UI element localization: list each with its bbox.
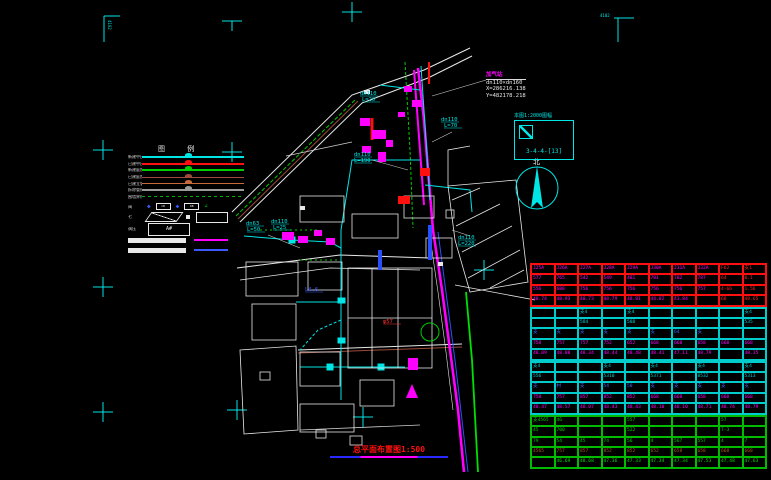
road-parallelogram-icon [144,212,183,222]
table-cell: 857 [578,447,602,457]
legend-line-sample [142,189,244,191]
table-cell: 48.68 [578,457,602,467]
table-cell: 48.79 [696,349,720,359]
legend-line-label: 新建庭院 [128,168,142,172]
table-cell: 4 [649,437,673,447]
legend-line-sample [142,177,244,178]
table-cell: 支 [602,328,626,338]
table-cell: 48.71 [696,403,720,413]
table-cell: 757 [555,447,579,457]
table-cell: 54 [602,382,626,392]
table-cell: 56 [625,437,649,447]
table-cell: 852 [602,393,626,403]
table-cell: 584 [578,318,602,328]
legend-line-label: 拆除管线 [128,188,142,192]
table-cell: 45 [531,426,555,436]
legend-ab-row: 调压A# [128,223,244,235]
pipe-network [244,85,472,400]
table-cell: 47.11 [672,349,696,359]
table-cell: 46.69 [555,457,579,467]
table-cell [555,318,579,328]
table-cell: 48.74 [719,403,743,413]
table-cell: 652 [625,339,649,349]
table-cell: 47.33 [625,457,649,467]
table-cell: 7-3 [719,426,743,436]
table-cell: 4565 [531,447,555,457]
legend-line-label: 已建立管 [128,182,142,186]
table-cell [555,362,579,372]
table-cell: 756 [578,285,602,295]
table-cell: 1.56 [743,285,767,295]
detail-box-title: 本图1:2000图幅 [514,112,576,119]
table-cell: 781 [649,274,673,284]
table-cell: 668 [672,393,696,403]
table-cell: 668 [743,393,767,403]
table-cell: 4 [719,437,743,447]
table-cell [649,416,673,426]
legend-symbol-box: DB [184,203,199,210]
table-cell: 47.63 [743,457,767,467]
legend-ab-label: 调压 [128,227,142,231]
table-cell: 支 [743,382,767,392]
table-cell [696,318,720,328]
table-cell: 758 [531,339,555,349]
station-annotation: 加气站 dn110×dn160 X=286216.138 Y=482178.21… [486,72,526,99]
table-cell: 47.36 [602,457,626,467]
table-cell: 668 [743,447,767,457]
table-cell: 557 [696,437,720,447]
table-cell: 支4 [602,362,626,372]
table-cell [649,318,673,328]
table-cell: 48.74 [531,295,555,305]
legend-bar-row [128,235,244,245]
table-cell [625,372,649,382]
legend-line-sample [142,163,244,165]
table-cell: 48.93 [555,295,579,305]
table-cell: 668 [719,393,743,403]
table-cell [555,308,579,318]
corner-text-tl: 4102 [107,20,111,30]
table-cell: 48.10 [672,403,696,413]
legend-line-row: 新建庭院 [128,167,244,174]
table-cell: 756 [625,285,649,295]
table-cell [672,362,696,372]
table-cell: 支4565 [531,416,555,426]
table-cell: 44.82 [649,295,673,305]
table-cell: 47.53 [696,457,720,467]
angle-icon: ∠ [204,203,208,210]
table-cell [696,308,720,318]
table-cell: 48.34 [578,349,602,359]
table-cell: 47.34 [649,457,673,467]
table-cell [672,372,696,382]
table-cell [602,318,626,328]
table-cell: 757 [696,285,720,295]
table-cell: 557 [625,416,649,426]
table-cell: 48.09 [531,349,555,359]
drawing-title-text: 总平面布置图1:500 [330,444,448,455]
table-cell: J29A [625,264,649,274]
legend-line-label: 已建中压 [128,162,142,166]
table-cell: 48.08 [555,349,579,359]
table-cell [578,416,602,426]
table-cell: 47.48 [719,457,743,467]
table-cell [625,362,649,372]
table-cell: 577 [531,274,555,284]
table-cell [696,295,720,305]
table-cell: 7 [743,437,767,447]
legend-line-sample [142,156,244,158]
legend-line-marker [185,186,192,190]
table-cell [531,318,555,328]
table-cell: 68 [719,295,743,305]
table-cell: 支4 [578,308,602,318]
table-cell: 756 [649,285,673,295]
table-cell: F62 [719,264,743,274]
legend-line-sample [142,169,244,171]
table-cell: 757 [555,339,579,349]
table-cell: 852 [625,393,649,403]
table-cell: 支 [531,328,555,338]
accent-line-icon [194,239,228,241]
table-cell: 567 [672,437,696,447]
table-cell [672,308,696,318]
table-cell: 542 [578,274,602,284]
legend-line-sample [142,183,244,184]
table-cell: 658 [672,447,696,457]
table-cell [743,328,767,338]
table-cell [743,416,767,426]
table-cell: 668 [672,339,696,349]
table-cell: 48.43 [625,403,649,413]
square-icon [186,215,190,219]
table-cell [531,308,555,318]
table-cell [578,426,602,436]
table-cell: 48.41 [649,349,673,359]
table-section: 支4支4支4支4支45565310537185325313支村支5450支支支支… [530,361,767,415]
station-coord-x: X=286216.138 [486,86,526,93]
table-cell: 652 [649,447,673,457]
table-cell: 74 [602,437,626,447]
legend-shapes-row: 七 [128,211,244,223]
table-cell [531,457,555,467]
table-cell: 48.65 [743,295,767,305]
table-cell [578,362,602,372]
legend-shapes-label: 七 [128,215,142,219]
north-arrow: 北 [516,158,558,209]
legend-bar-row [128,245,244,255]
table-cell [719,362,743,372]
table-cell: 支1 [743,264,767,274]
table-cell: 48.81 [625,295,649,305]
table-cell: 48.57 [555,403,579,413]
table-cell: 48.47 [531,403,555,413]
table-section: J25AJ26AJ27AJ28AJ29AJ30AJ31AJ32AF62支1577… [530,263,767,307]
table-cell: 45 [578,437,602,447]
table-cell: 556 [531,372,555,382]
hatch-square-icon [519,125,533,139]
legend-line-label: 新建中压 [128,155,142,159]
legend-line-marker [185,180,192,184]
table-cell [696,426,720,436]
table-cell: 48.48 [625,349,649,359]
legend: 图 例 新建中压已建中压新建庭院已建庭院已建立管拆除管线围墙界线阀◆CB◆DB∠… [128,144,244,255]
table-cell: J27A [578,264,602,274]
table-cell: 756 [602,285,626,295]
table-cell [649,426,673,436]
corner-text-tr: 4102 [600,14,610,18]
buildings-group [240,196,454,445]
table-cell: 787 [696,274,720,284]
table-cell: J26A [555,264,579,274]
table-cell: 48.44 [602,349,626,359]
legend-line-sample [142,196,244,197]
valve-diamond-icon: ◆ [147,204,151,210]
table-cell: J31A [672,264,696,274]
white-bar-icon [128,248,186,253]
accent-features [260,90,443,341]
legend-title: 图 例 [158,144,244,154]
table-cell: 852 [625,447,649,457]
station-name: 加气站 [486,72,526,80]
table-cell: J30A [649,264,673,274]
table-cell [719,318,743,328]
table-cell [672,426,696,436]
legend-line-marker [185,160,192,164]
table-cell: 658 [696,339,720,349]
table-cell [672,318,696,328]
table-cell: 688 [555,285,579,295]
table-cell: 支 [696,328,720,338]
table-cell: 668 [743,339,767,349]
table-cell: 43.84 [672,295,696,305]
table-cell: 5371 [649,372,673,382]
table-cell: 支4 [531,362,555,372]
legend-line-marker [185,174,192,178]
table-cell [578,372,602,382]
table-cell: 700 [555,426,579,436]
cad-sheet: dn63L=50dn110L=25dn110L=190dn110L=20dn11… [0,0,771,480]
table-cell [719,372,743,382]
detail-reference-box: 本图1:2000图幅 3-4-4-[13] [514,112,576,160]
table-cell: 668 [649,339,673,349]
table-cell: 64 [672,328,696,338]
table-cell: 50 [625,382,649,392]
coordinate-table: J25AJ26AJ27AJ28AJ29AJ30AJ31AJ32AF62支1577… [530,263,767,469]
table-cell: 支 [625,328,649,338]
table-cell: 48.79 [743,403,767,413]
table-cell: 57 [719,416,743,426]
legend-line-marker [185,153,192,157]
table-cell: 5313 [743,372,767,382]
table-cell: 支 [649,328,673,338]
accent-line-icon [194,249,228,251]
table-cell: 47.34 [672,457,696,467]
detail-box-frame: 3-4-4-[13] [514,120,574,160]
table-cell: 756 [672,285,696,295]
table-cell: J32A [696,264,720,274]
table-cell: 48.07 [578,403,602,413]
leader-lines [268,80,486,248]
table-cell: 757 [578,339,602,349]
table-cell: 535 [743,318,767,328]
table-cell: 支4 [625,308,649,318]
pipeline-corridor [372,62,478,472]
table-section: 支45654655757457005227-379544574564567557… [530,415,767,469]
table-cell: 支 [531,382,555,392]
station-coord-y: Y=482178.218 [486,93,526,100]
table-cell [719,308,743,318]
table-cell: 0.1 [743,274,767,284]
table-cell: 48.43 [602,403,626,413]
table-cell: 支4 [743,362,767,372]
table-cell: 549 [602,274,626,284]
legend-symbol-box: CB [156,203,171,210]
table-cell [672,416,696,426]
table-cell: 668 [719,447,743,457]
drawing-title-underline [330,456,448,458]
table-cell: 852 [602,447,626,457]
table-cell: 481 [625,274,649,284]
table-cell: 8532 [696,372,720,382]
table-cell: 4-66 [719,285,743,295]
table-cell: 48.79 [602,295,626,305]
table-cell: 支 [578,328,602,338]
table-cell [696,416,720,426]
table-cell: 658 [696,447,720,457]
table-cell: 588 [625,318,649,328]
table-cell: 556 [531,285,555,295]
detail-sheet-ref: 3-4-4-[13] [515,148,573,155]
table-cell: 48.35 [743,349,767,359]
table-cell [602,426,626,436]
building-rect-icon [196,212,228,223]
table-cell: 支4 [649,362,673,372]
table-cell: 758 [531,393,555,403]
table-cell: 64 [719,274,743,284]
table-cell: 支4 [743,308,767,318]
table-cell [719,328,743,338]
table-cell: 857 [578,393,602,403]
table-cell: 支4 [696,362,720,372]
table-cell: 支 [719,382,743,392]
table-cell: 村 [555,382,579,392]
valve-diamond-icon: ◆ [176,204,180,210]
table-cell [602,416,626,426]
table-cell [602,308,626,318]
table-cell: 支 [578,382,602,392]
table-cell: 5310 [602,372,626,382]
table-cell: 752 [602,339,626,349]
table-cell [555,372,579,382]
table-cell: 支 [555,328,579,338]
table-cell [743,426,767,436]
table-cell: 522 [625,426,649,436]
table-cell: 79 [531,437,555,447]
table-cell: 658 [696,393,720,403]
legend-line-row: 拆除管线 [128,187,244,194]
legend-line-row: 围墙界线 [128,194,244,201]
table-cell: 48.10 [649,403,673,413]
table-section: 支4支4支4584588535支支支支支支64支7587577577526526… [530,307,767,361]
table-cell: J25A [531,264,555,274]
legend-rows: 新建中压已建中压新建庭院已建庭院已建立管拆除管线围墙界线阀◆CB◆DB∠七调压A… [128,154,244,255]
legend-line-label: 已建庭院 [128,175,142,179]
white-bar-icon [128,238,186,243]
legend-line-marker [185,166,192,170]
legend-line-label: 围墙界线 [128,195,142,199]
table-cell: 668 [649,393,673,403]
table-cell: 支 [672,382,696,392]
table-cell: 46 [555,416,579,426]
table-cell [719,349,743,359]
table-cell: 48.73 [578,295,602,305]
table-cell: 54 [555,437,579,447]
table-cell: 支 [649,382,673,392]
table-cell: 支 [696,382,720,392]
drawing-title: 总平面布置图1:500 [330,444,448,458]
table-cell: 765 [555,274,579,284]
table-cell: 757 [555,393,579,403]
table-cell [649,308,673,318]
legend-symbol-label: 阀 [128,205,142,209]
regulator-box-icon: A# [148,223,190,236]
table-cell: J28A [602,264,626,274]
legend-symbol-row: 阀◆CB◆DB∠ [128,202,244,211]
table-cell: 668 [719,339,743,349]
table-cell: 782 [672,274,696,284]
